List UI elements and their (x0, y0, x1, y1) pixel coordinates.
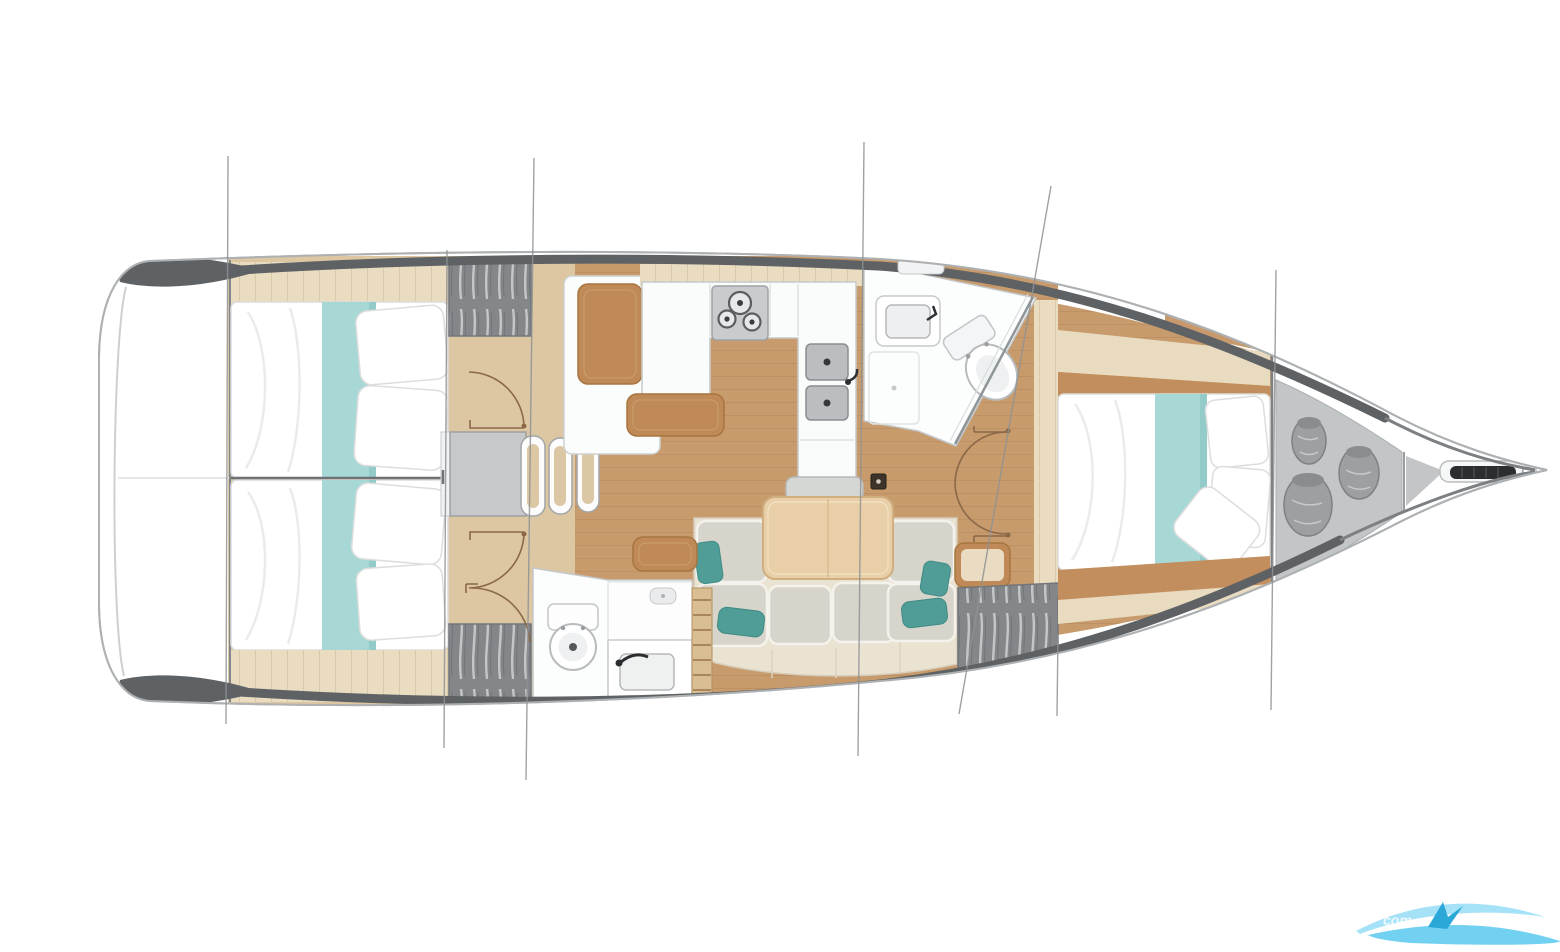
hanging-locker-starboard (449, 624, 531, 700)
watermark-logo: com (1356, 902, 1560, 945)
pillow (355, 304, 449, 385)
mast-post-dot (876, 479, 881, 484)
floorplan-svg: Sailing yacht interior layout plan, top-… (0, 0, 1560, 952)
step-tread (527, 444, 539, 508)
sail-bag (1292, 417, 1326, 464)
forward-head (533, 568, 712, 700)
toilet-hinge (581, 626, 585, 630)
settee-cushion (833, 583, 895, 642)
sink-basin (620, 654, 674, 690)
ottoman (633, 537, 697, 571)
head-sink-basin (886, 305, 930, 338)
sail-bag (1284, 473, 1332, 536)
stay-line (1057, 634, 1058, 716)
soap-dish-dot (661, 594, 665, 598)
vanity-cabinet (608, 582, 692, 640)
faucet-handle (616, 660, 623, 667)
fridge-top (578, 284, 642, 384)
boat-floorplan-canvas: Sailing yacht interior layout plan, top-… (0, 0, 1560, 952)
toilet-drain (569, 643, 577, 651)
burner-center (737, 300, 743, 306)
pillow (1205, 395, 1270, 469)
teal-pillow (901, 597, 949, 628)
sail-bag (1339, 446, 1379, 499)
sink-drain (824, 359, 831, 366)
shower-drain (892, 386, 897, 391)
aft-cabin-starboard (231, 480, 448, 702)
hanging-locker-port (449, 263, 531, 336)
pillow (351, 482, 447, 566)
settee-cushion (769, 586, 831, 644)
teal-pillow (693, 540, 723, 584)
burner-center (724, 316, 729, 321)
toilet-hinge (561, 626, 565, 630)
aft-cabin-port (231, 262, 449, 478)
teal-pillow (717, 606, 766, 637)
faucet-base (845, 379, 851, 385)
engine-box-platform (450, 432, 526, 516)
pillow (353, 385, 448, 471)
interior (114, 256, 1536, 708)
watermark-text: com (1383, 912, 1412, 928)
step-tread (582, 448, 594, 504)
sink-drain (824, 400, 831, 407)
pillow (356, 563, 447, 641)
burner-center (749, 319, 754, 324)
step-tread (554, 446, 566, 506)
teal-pillow (919, 560, 951, 597)
